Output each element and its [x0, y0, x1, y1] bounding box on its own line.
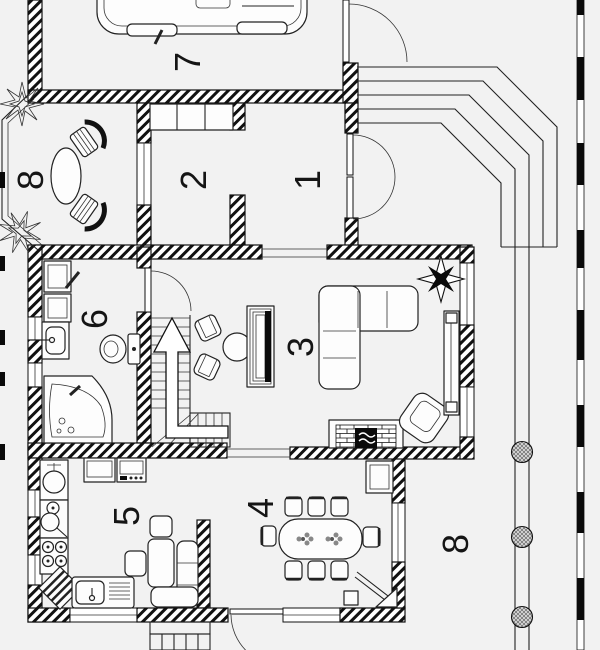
- bathroom-cabinet: [44, 294, 71, 322]
- washing-machine: [44, 261, 79, 292]
- plant-icon: [0, 82, 44, 126]
- north-star-icon: [418, 256, 464, 302]
- armchair: [193, 313, 222, 342]
- column: [512, 607, 533, 628]
- room-label-veranda: 8: [13, 170, 49, 190]
- room-label-bathroom: 6: [77, 309, 113, 329]
- scale-bar: [577, 0, 584, 650]
- kitchen-table-set: [125, 516, 198, 607]
- entry-steps: [357, 67, 557, 247]
- shelf-unit: [247, 306, 274, 387]
- room-label-terrace: 8: [438, 534, 474, 554]
- corner-rack: [344, 572, 397, 607]
- back-door: [230, 609, 283, 650]
- corner-bathtub: [44, 376, 112, 443]
- toilet: [100, 334, 140, 364]
- terrace-edge: [512, 247, 533, 650]
- kitchen-table: [148, 539, 174, 587]
- kitchen-chair: [150, 516, 172, 537]
- kitchen-bench: [151, 587, 198, 607]
- wardrobe: [150, 104, 233, 130]
- garage-side-door: [343, 0, 407, 62]
- fireplace: [329, 420, 403, 448]
- radiator: [444, 311, 459, 415]
- armchair: [192, 352, 221, 381]
- oven-counter: [84, 458, 146, 482]
- stove-burners: [40, 538, 68, 574]
- veranda-table: [51, 148, 81, 204]
- room-label-kitchen: 5: [109, 506, 145, 526]
- sideboard: [366, 461, 393, 493]
- kitchen-sink: [72, 577, 134, 608]
- room-label-hall: 1: [290, 170, 326, 190]
- room-label-dining-room: 4: [243, 498, 279, 518]
- column: [512, 442, 533, 463]
- corner-sofa: [319, 286, 418, 389]
- room-label-living-room: 3: [283, 337, 319, 357]
- room-label-room: 2: [176, 170, 212, 190]
- dining-table: [279, 519, 362, 559]
- back-steps: [150, 622, 210, 650]
- bathroom-door: [145, 268, 191, 312]
- room-label-garage: 7: [170, 52, 206, 72]
- refrigerator: [40, 460, 68, 500]
- entry-double-door: [347, 134, 395, 219]
- kitchen-chair: [125, 551, 146, 576]
- car: [97, 0, 307, 44]
- bathroom-sink: [42, 322, 69, 359]
- column: [512, 527, 533, 548]
- kitchen-worktop: [40, 500, 68, 538]
- floor-plan: 1 2 3 4 5 6 7 8 8: [0, 0, 600, 650]
